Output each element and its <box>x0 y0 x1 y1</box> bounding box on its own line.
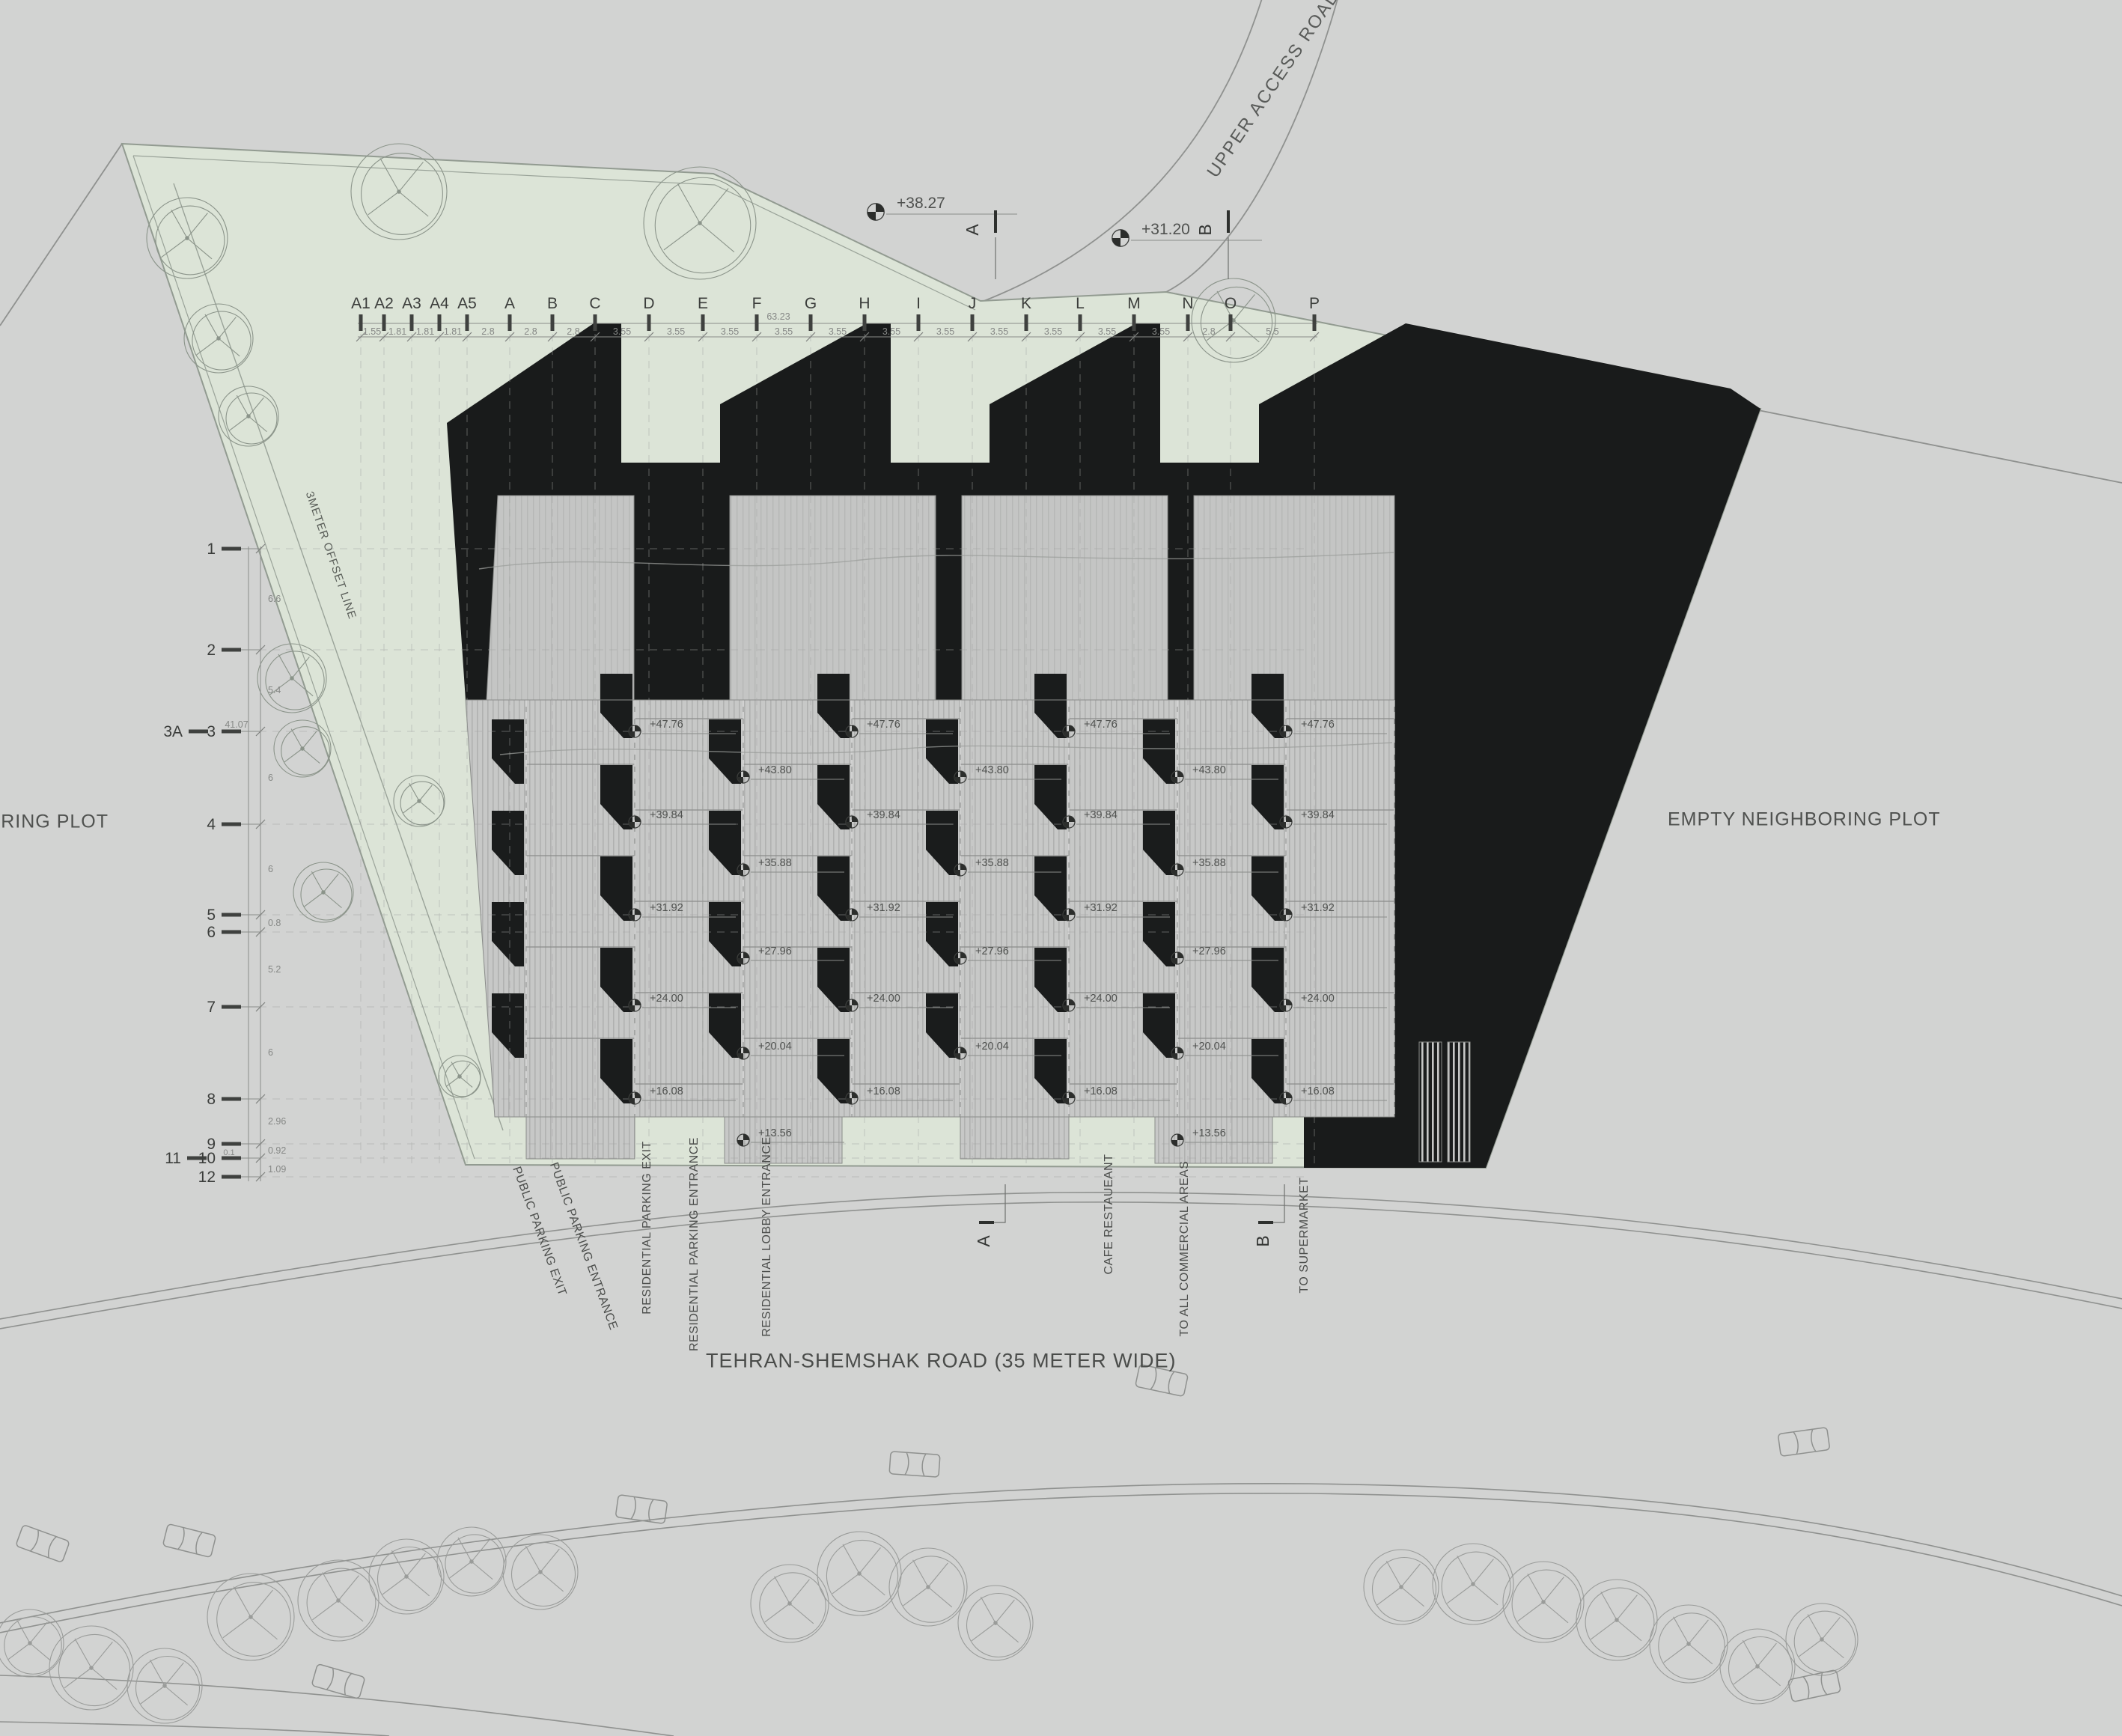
section-letter: B <box>1253 1235 1272 1246</box>
top-dim-value: 3.55 <box>1152 326 1170 337</box>
grid-row-label: 10 <box>198 1150 216 1167</box>
elevation-marker-value: +20.04 <box>1192 1041 1226 1053</box>
grid-column-label: K <box>1021 295 1031 312</box>
elevation-marker-value: +39.84 <box>867 809 900 821</box>
grid-row-label: 11 <box>165 1150 181 1167</box>
elevation-marker-value: +13.56 <box>758 1127 792 1139</box>
grid-row-label: 5 <box>207 907 216 924</box>
top-dim-value: 2.8 <box>567 326 579 337</box>
grid-column-label: H <box>859 295 870 312</box>
grid-column-label: O <box>1225 295 1237 312</box>
top-dim-value: 1.81 <box>388 326 406 337</box>
left-dim-value: 6 <box>268 864 273 874</box>
elevation-marker-value: +24.00 <box>1084 993 1118 1005</box>
elevation-marker-value: +31.92 <box>867 902 900 914</box>
top-dim-value: 1.81 <box>444 326 462 337</box>
top-dim-value: 2.8 <box>1202 326 1215 337</box>
elevation-marker-value: +31.92 <box>1084 902 1118 914</box>
elevation-marker-value: +20.04 <box>758 1041 792 1053</box>
elevation-marker-value: +47.76 <box>650 719 683 731</box>
top-dim-value: 3.55 <box>667 326 685 337</box>
elevation-marker-value: +39.84 <box>650 809 683 821</box>
elevation-marker-value: +20.04 <box>975 1041 1009 1053</box>
grid-row-label: 6 <box>207 924 216 941</box>
overall-dim: 63.23 <box>766 311 790 322</box>
section-letter: B <box>1195 224 1215 235</box>
entrance-canopy <box>526 1117 635 1159</box>
left-dim-value: 6 <box>268 773 273 783</box>
elevation-marker-value: +43.80 <box>758 764 792 776</box>
grid-column-label: P <box>1309 295 1320 312</box>
top-dim-value: 3.55 <box>721 326 739 337</box>
site-plan-drawing: A1A2A3A4A5ABCDEFGHIJKLMNOP1233A456789101… <box>0 0 2122 1736</box>
overall-dim: 41.07 <box>225 719 248 730</box>
grid-row-label: 4 <box>207 816 216 833</box>
grid-row-label: 12 <box>198 1169 216 1186</box>
grid-column-label: A2 <box>374 295 394 312</box>
elevation-marker-value: +16.08 <box>650 1085 683 1097</box>
elevation-marker-value: +39.84 <box>1084 809 1118 821</box>
elevation-marker-value: +24.00 <box>1301 993 1335 1005</box>
benchmark-value: +31.20 <box>1141 221 1190 238</box>
grid-column-label: C <box>589 295 600 312</box>
grid-column-label: I <box>916 295 921 312</box>
grid-column-label: D <box>643 295 654 312</box>
elevation-marker-value: +35.88 <box>758 857 792 869</box>
top-dim-value: 3.55 <box>936 326 954 337</box>
grid-column-label: A <box>504 295 515 312</box>
elevation-marker-value: +47.76 <box>1084 719 1118 731</box>
elevation-marker-value: +35.88 <box>975 857 1009 869</box>
top-dim-value: 3.55 <box>1098 326 1116 337</box>
elevation-marker-value: +27.96 <box>758 945 792 957</box>
grid-row-label: 3A <box>163 723 183 740</box>
left-dim-value: 0.8 <box>268 918 281 928</box>
grid-column-label: F <box>752 295 762 312</box>
grid-column-label: A1 <box>351 295 371 312</box>
section-letter: A <box>974 1235 993 1247</box>
left-dim-value: 6 <box>268 1047 273 1058</box>
grid-column-label: A3 <box>402 295 421 312</box>
elevation-marker-value: +47.76 <box>867 719 900 731</box>
top-dim-value: 3.55 <box>882 326 900 337</box>
left-dim-value: 5.4 <box>268 685 281 695</box>
top-dim-value: 1.55 <box>363 326 381 337</box>
elevation-marker-value: +27.96 <box>975 945 1009 957</box>
elevation-marker-value: +24.00 <box>867 993 900 1005</box>
elevation-marker-value: +35.88 <box>1192 857 1226 869</box>
top-dim-value: 2.8 <box>524 326 537 337</box>
elevation-marker-value: +13.56 <box>1192 1127 1226 1139</box>
elevation-marker-value: +43.80 <box>975 764 1009 776</box>
top-dim-value: 2.8 <box>481 326 494 337</box>
elevation-marker-value: +27.96 <box>1192 945 1226 957</box>
grid-column-label: E <box>698 295 708 312</box>
grid-row-label: 2 <box>207 642 216 659</box>
grid-row-label: 3 <box>207 723 216 740</box>
top-dim-value: 3.55 <box>1044 326 1062 337</box>
elevation-marker-value: +39.84 <box>1301 809 1335 821</box>
site-plan-canvas: A1A2A3A4A5ABCDEFGHIJKLMNOP1233A456789101… <box>0 0 2122 1736</box>
top-dim-value: 3.55 <box>775 326 793 337</box>
top-dim-value: 3.55 <box>613 326 631 337</box>
left-dim-value: 6.6 <box>268 594 281 604</box>
grid-column-label: A5 <box>457 295 477 312</box>
elevation-marker-value: +31.92 <box>650 902 683 914</box>
left-dim-value: 1.09 <box>268 1164 286 1175</box>
left-dim-value: 2.96 <box>268 1116 286 1127</box>
grid-column-label: A4 <box>430 295 449 312</box>
grid-row-label: 8 <box>207 1091 216 1108</box>
grid-row-label: 7 <box>207 999 216 1016</box>
benchmark-value: +38.27 <box>897 195 945 212</box>
extra-dim-value: 0.1 <box>223 1148 234 1157</box>
elevation-marker-value: +43.80 <box>1192 764 1226 776</box>
entrance-canopy <box>960 1117 1069 1159</box>
top-dim-value: 1.81 <box>416 326 434 337</box>
top-dim-value: 5.5 <box>1266 326 1278 337</box>
grid-column-label: G <box>805 295 817 312</box>
grid-row-label: 1 <box>207 540 216 558</box>
top-dim-value: 3.55 <box>829 326 847 337</box>
grid-column-label: M <box>1127 295 1141 312</box>
grid-column-label: B <box>547 295 558 312</box>
left-dim-value: 0.92 <box>268 1145 286 1156</box>
grid-column-label: J <box>969 295 977 312</box>
elevation-marker-value: +16.08 <box>1301 1085 1335 1097</box>
elevation-marker-value: +16.08 <box>867 1085 900 1097</box>
elevation-marker-value: +31.92 <box>1301 902 1335 914</box>
section-letter: A <box>963 224 982 236</box>
elevation-marker-value: +16.08 <box>1084 1085 1118 1097</box>
elevation-marker-value: +47.76 <box>1301 719 1335 731</box>
grid-column-label: L <box>1076 295 1085 312</box>
elevation-marker-value: +24.00 <box>650 993 683 1005</box>
grid-column-label: N <box>1182 295 1193 312</box>
left-dim-value: 5.2 <box>268 964 281 975</box>
top-dim-value: 3.55 <box>990 326 1008 337</box>
